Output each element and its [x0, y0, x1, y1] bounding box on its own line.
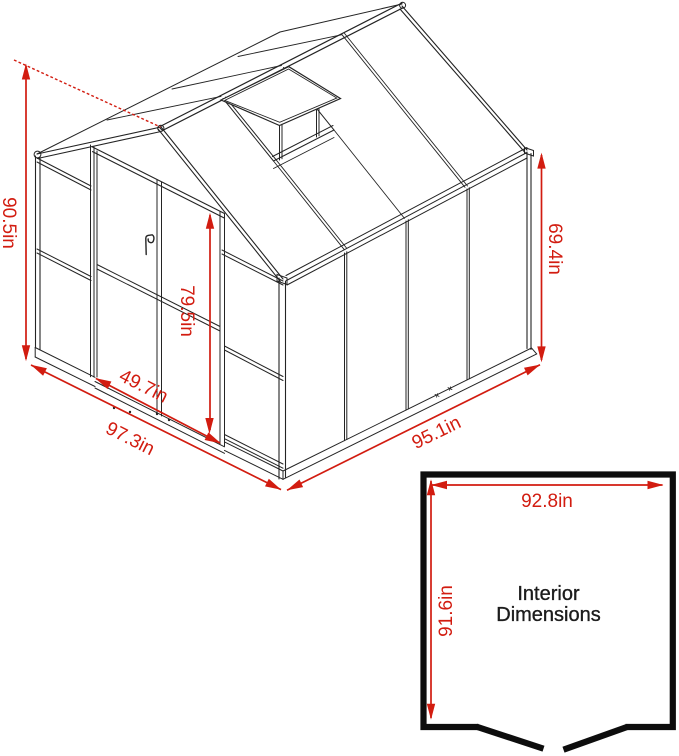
svg-text:Dimensions: Dimensions	[496, 604, 600, 626]
svg-text:92.8in: 92.8in	[521, 491, 573, 512]
svg-text:91.6in: 91.6in	[436, 585, 457, 637]
svg-text:Interior: Interior	[517, 583, 580, 605]
svg-text:90.5in: 90.5in	[0, 197, 19, 249]
svg-text:69.4in: 69.4in	[544, 223, 565, 275]
svg-text:79.5in: 79.5in	[176, 285, 197, 337]
